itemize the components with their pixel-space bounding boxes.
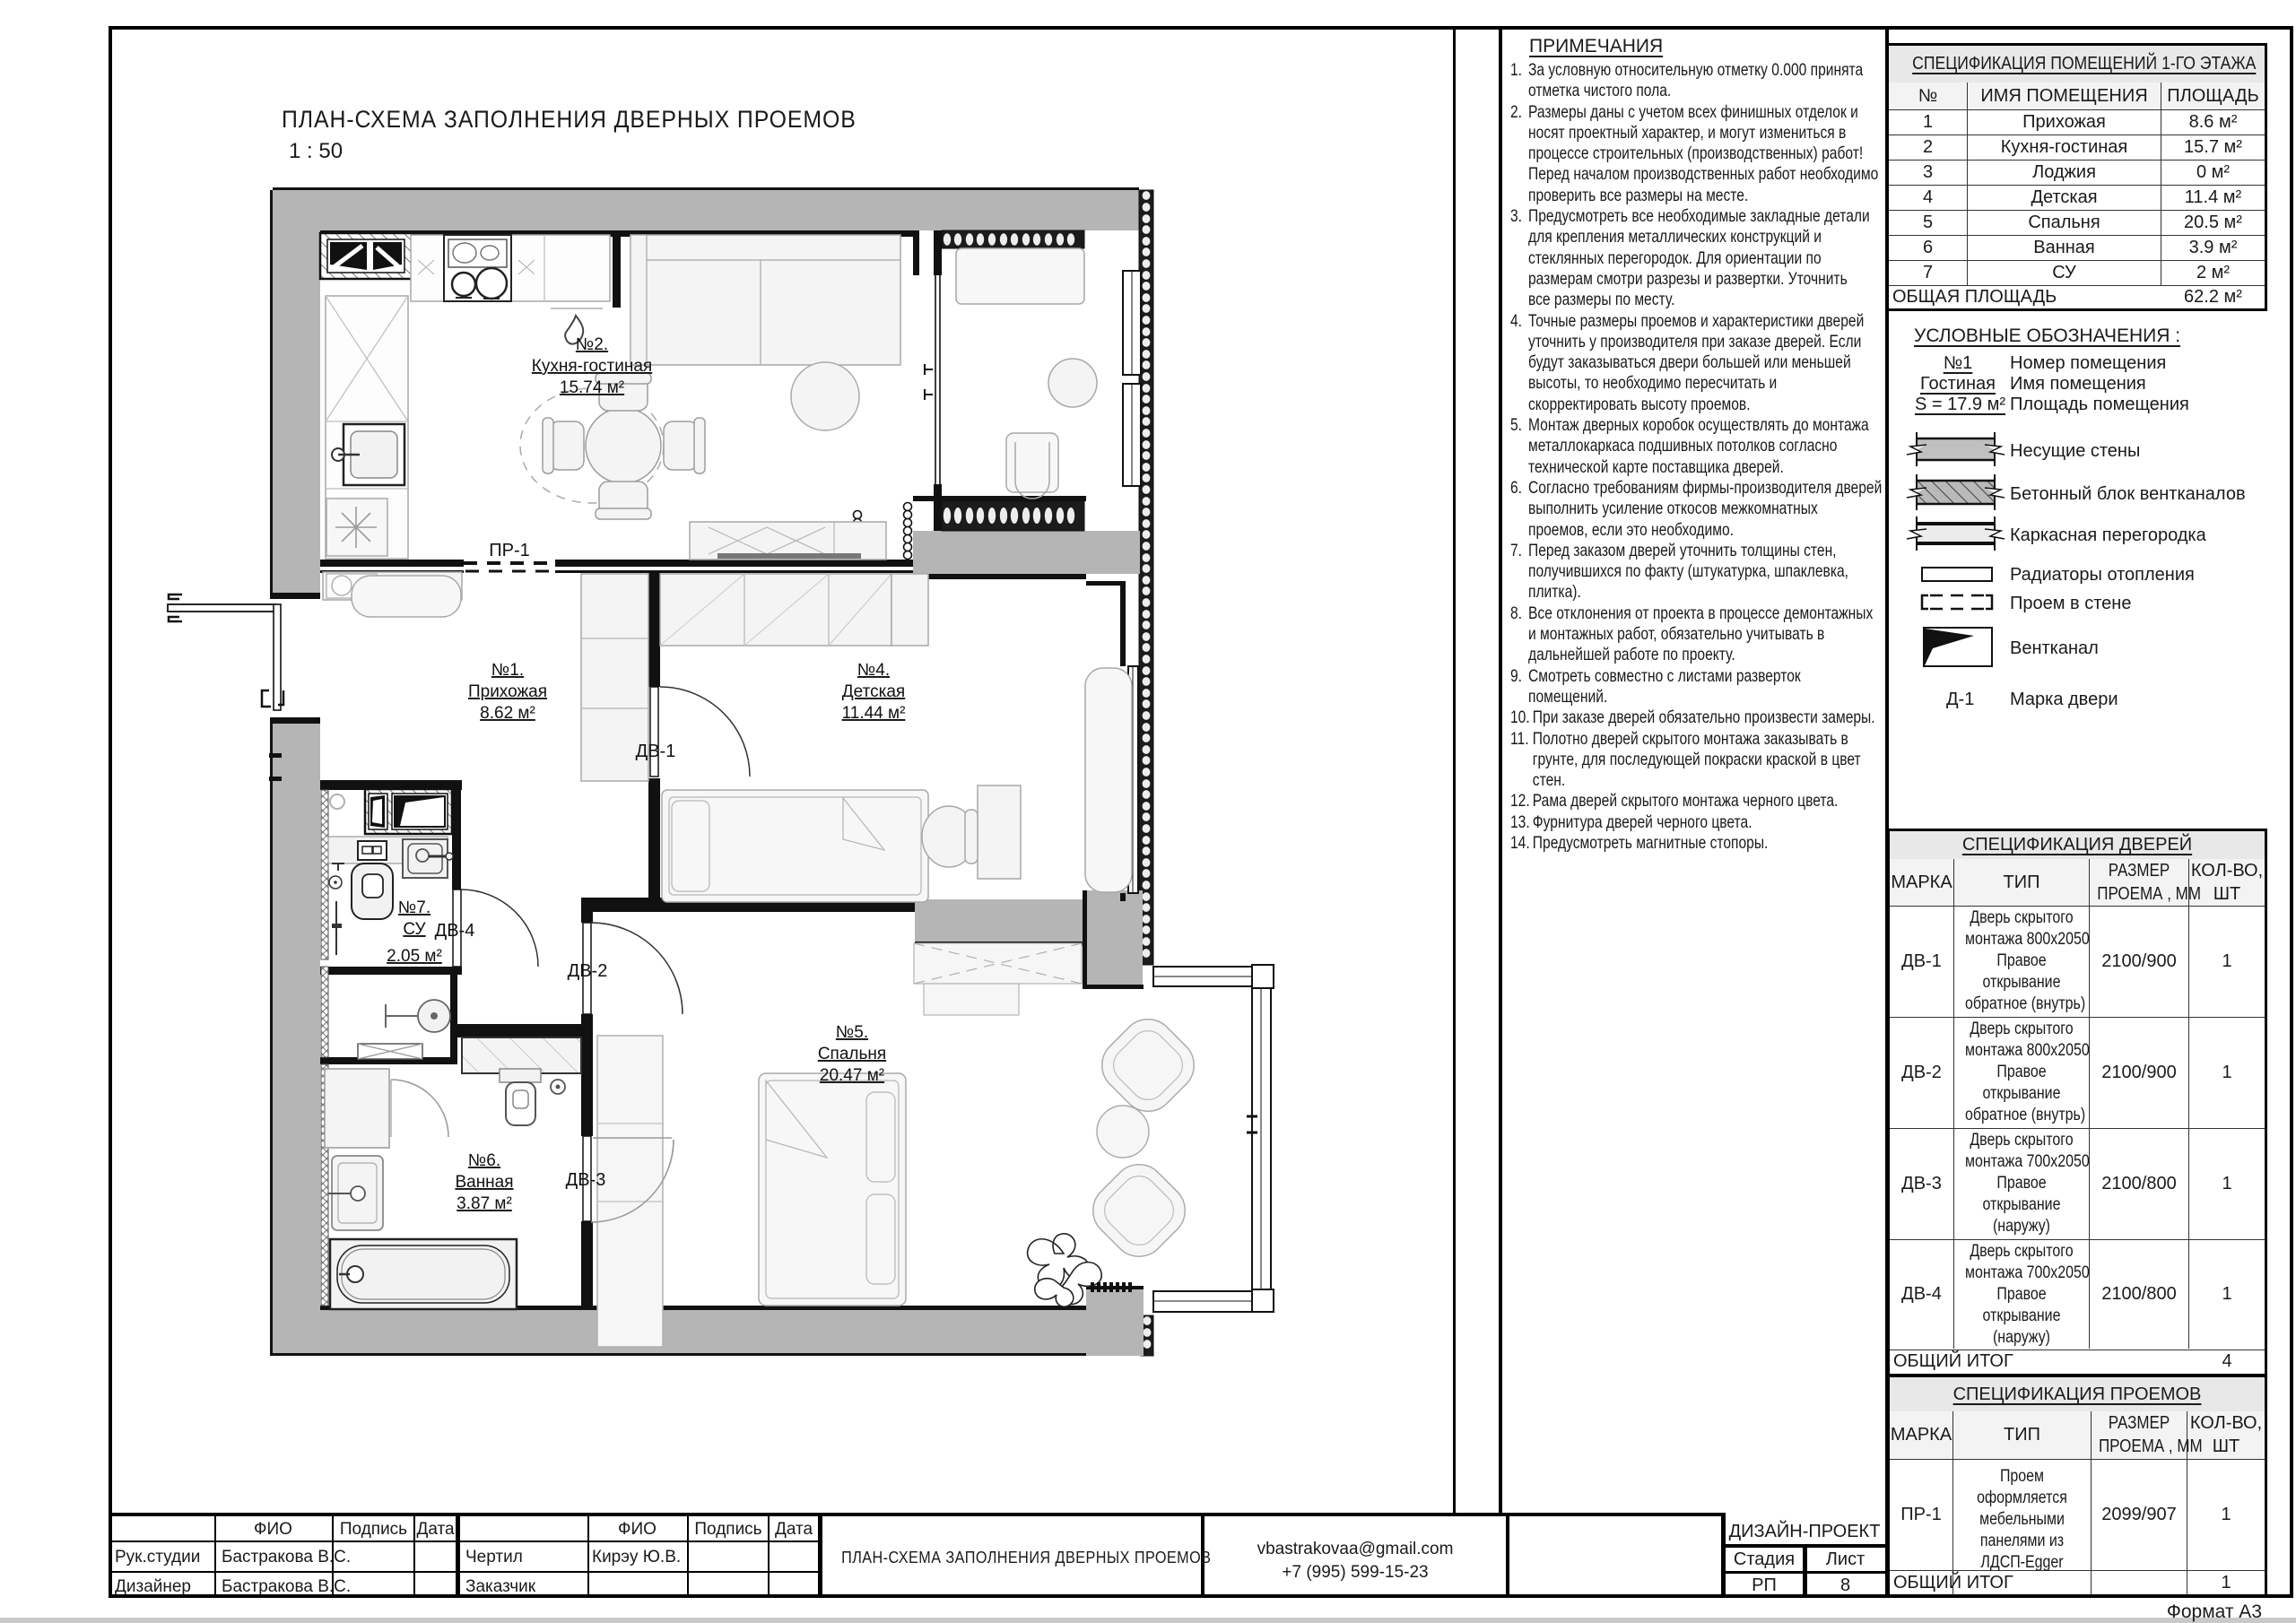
svg-text:11.44 м²: 11.44 м² <box>842 704 906 723</box>
svg-text:№4.: №4. <box>857 661 890 680</box>
svg-text:ПР-1: ПР-1 <box>489 541 530 560</box>
svg-text:№7.: №7. <box>398 898 430 917</box>
svg-text:СУ: СУ <box>403 920 426 939</box>
svg-text:ДВ-4: ДВ-4 <box>435 921 475 941</box>
svg-text:ДВ-3: ДВ-3 <box>566 1170 606 1190</box>
svg-text:8.62 м²: 8.62 м² <box>480 704 535 723</box>
svg-text:3.87 м²: 3.87 м² <box>457 1194 512 1213</box>
svg-text:Прихожая: Прихожая <box>468 682 547 701</box>
svg-text:ДВ-1: ДВ-1 <box>636 742 676 761</box>
svg-text:20.47 м²: 20.47 м² <box>820 1066 884 1085</box>
svg-text:№6.: №6. <box>468 1151 500 1170</box>
svg-text:Спальня: Спальня <box>818 1045 886 1063</box>
svg-text:№1.: №1. <box>491 661 524 680</box>
svg-text:ДВ-2: ДВ-2 <box>568 961 608 981</box>
svg-text:15.74 м²: 15.74 м² <box>560 378 624 397</box>
svg-text:Кухня-гостиная: Кухня-гостиная <box>532 357 652 376</box>
svg-text:№2.: №2. <box>576 335 608 354</box>
svg-text:Детская: Детская <box>842 682 905 701</box>
svg-text:Ванная: Ванная <box>455 1173 513 1192</box>
svg-text:2.05 м²: 2.05 м² <box>387 947 442 966</box>
svg-text:№5.: №5. <box>836 1023 868 1042</box>
